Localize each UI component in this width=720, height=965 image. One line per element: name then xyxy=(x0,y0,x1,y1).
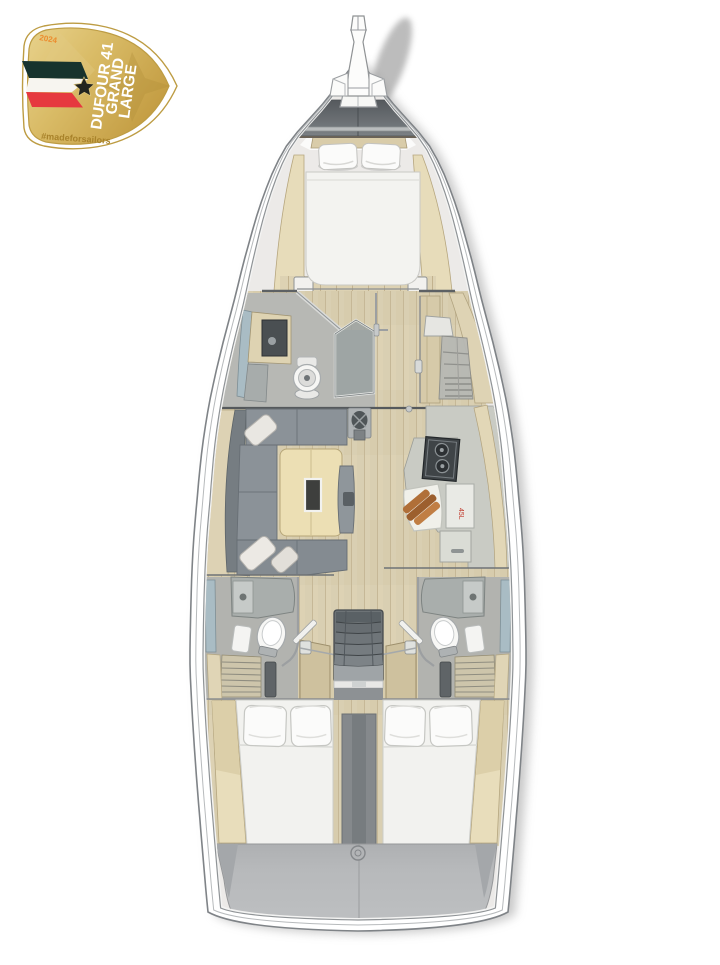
svg-text:45L: 45L xyxy=(457,508,464,520)
